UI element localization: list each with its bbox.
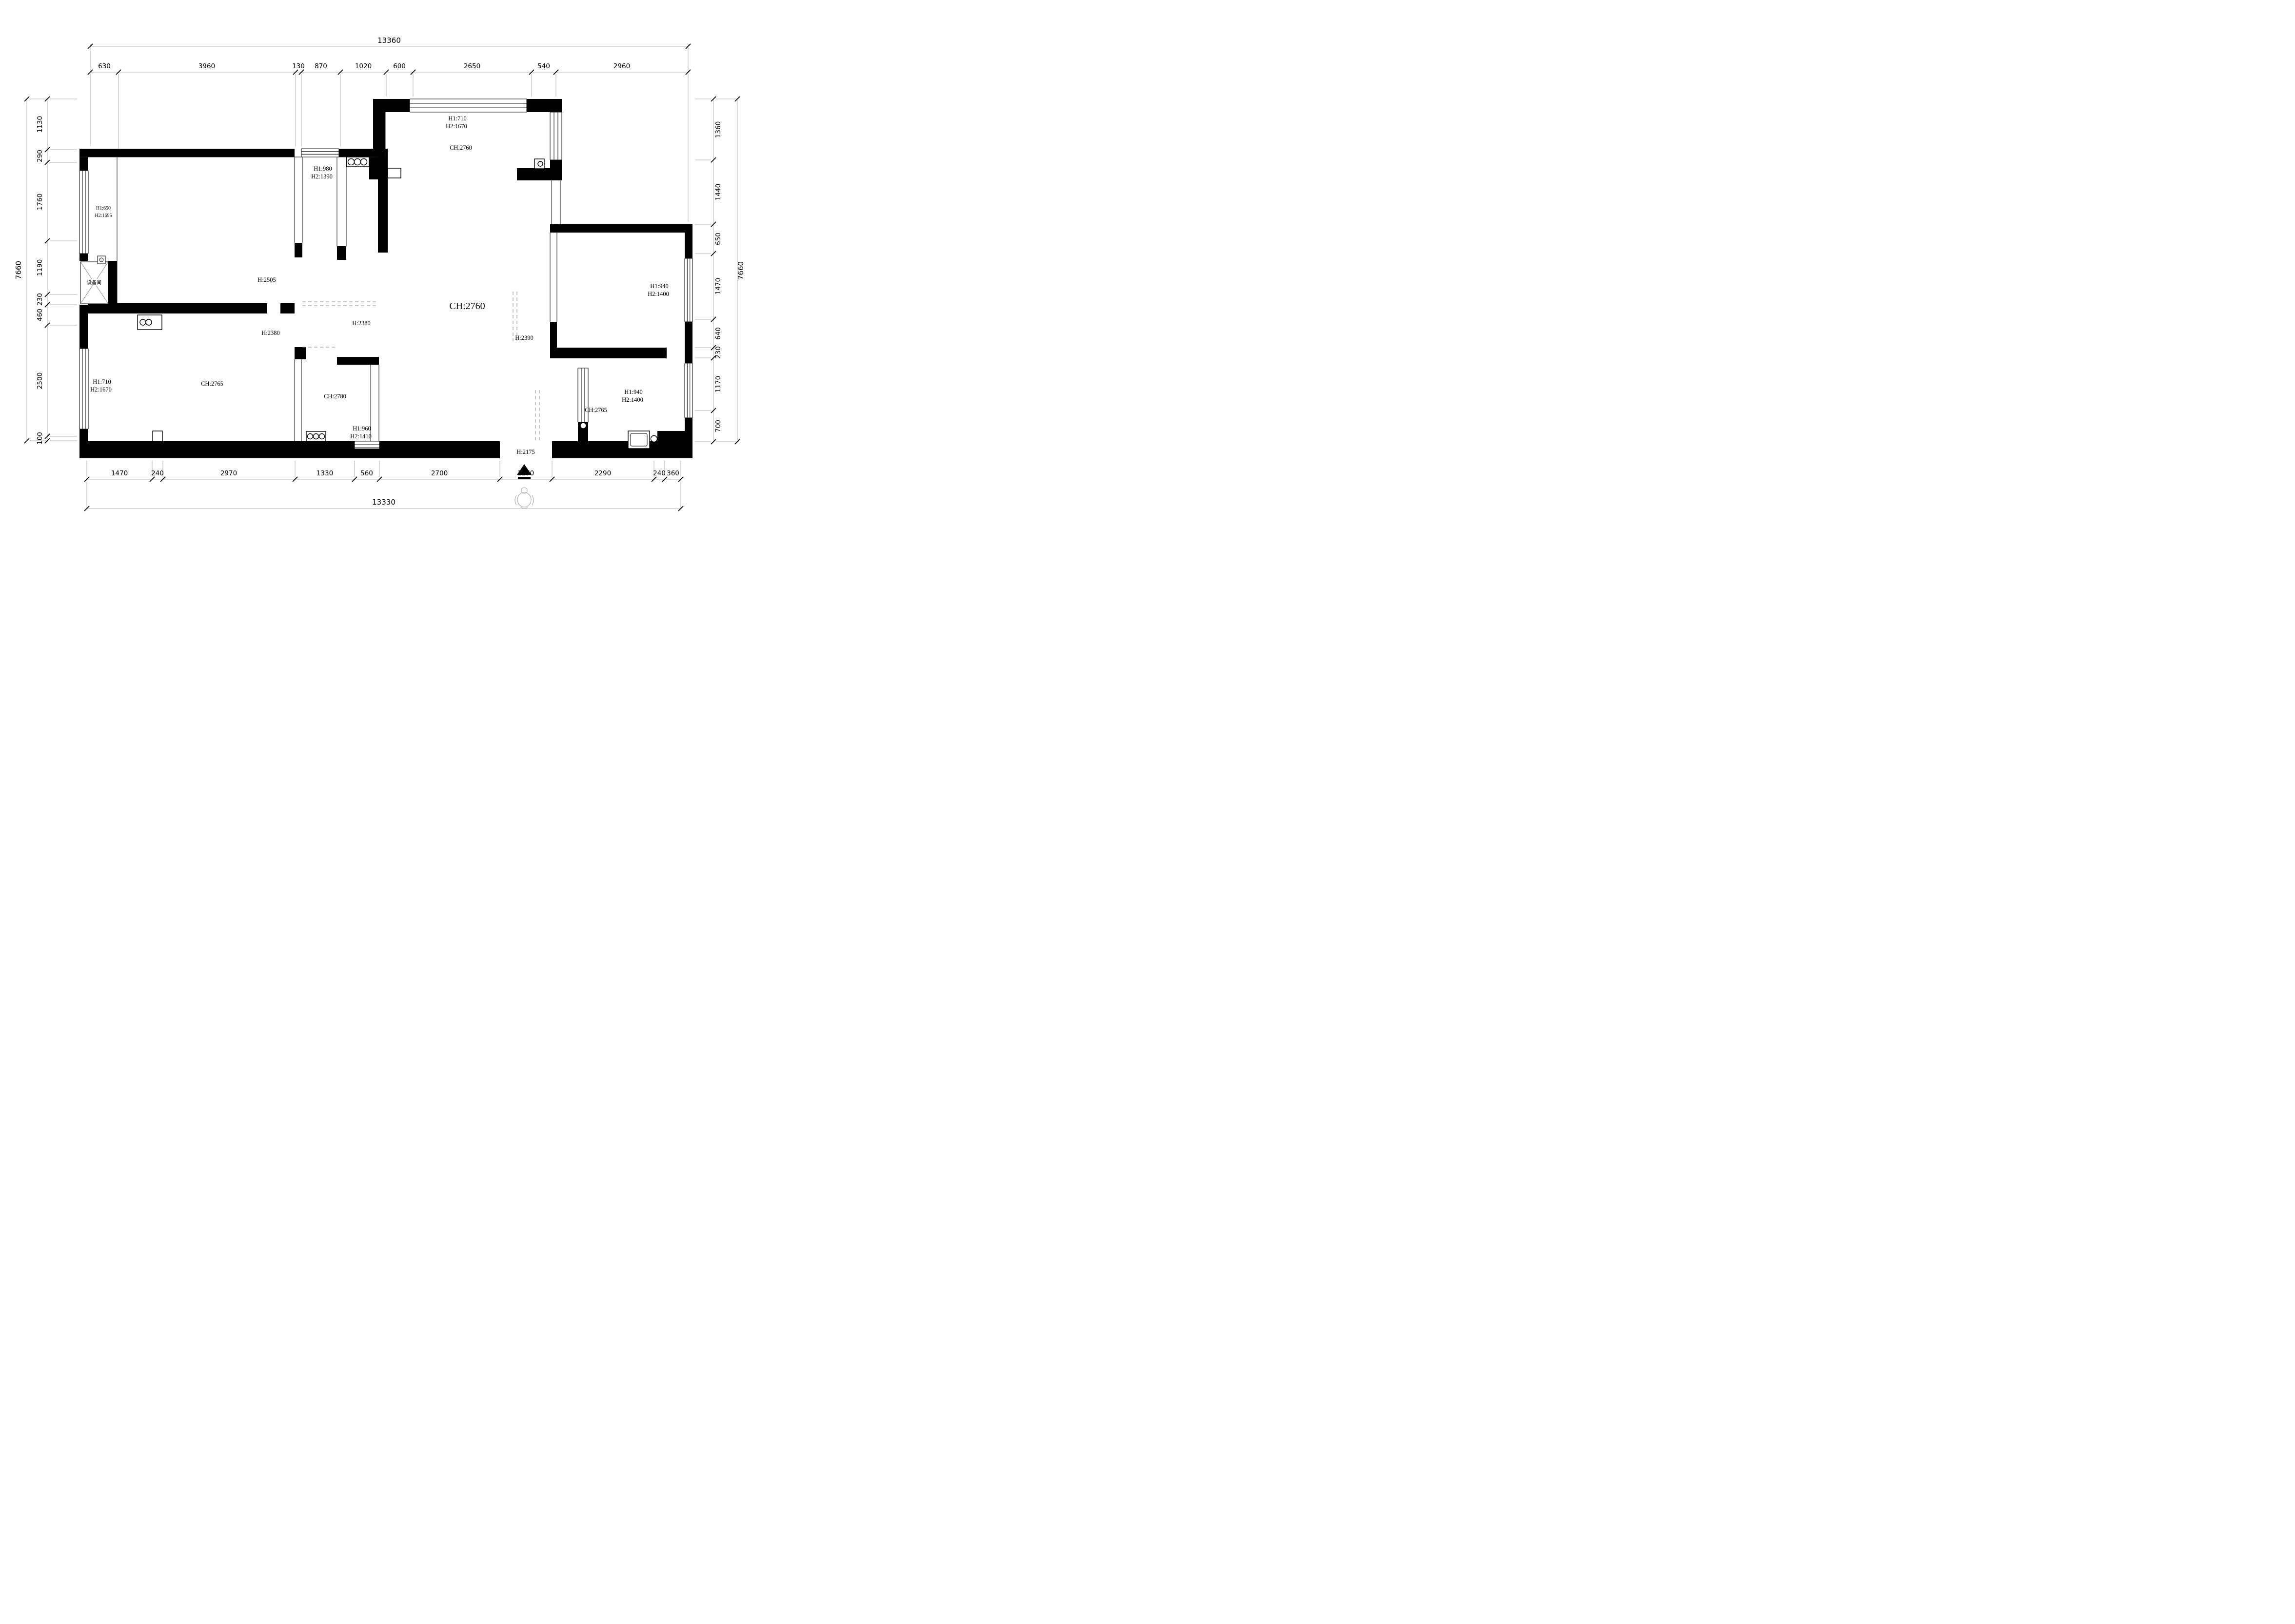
ceiling-height-label: CH:2765 — [201, 380, 223, 387]
dim-left-seg: 1190 — [36, 259, 44, 276]
dim-bottom-seg: 240 — [151, 470, 164, 477]
dim-top: 13360 630 3960 130 870 1020 600 2650 540… — [98, 36, 630, 70]
dim-top-seg: 130 — [292, 62, 305, 70]
ceiling-height-label: CH:2780 — [324, 393, 346, 400]
dim-left-seg: 290 — [36, 150, 44, 162]
dim-left: 7660 1130 290 1760 1190 230 460 2500 100 — [14, 116, 44, 445]
thin-partitions — [79, 112, 560, 441]
window-label: H2:1400 — [648, 291, 669, 297]
window-label: H2:1410 — [350, 433, 372, 440]
dim-left-seg: 230 — [36, 293, 44, 306]
counter-icon — [138, 315, 162, 330]
dim-top-seg: 1020 — [355, 62, 372, 70]
dim-right-total: 7660 — [736, 261, 745, 280]
window-label: H1:710 — [93, 378, 111, 385]
ceiling-height-label: CH:2760 — [449, 301, 485, 312]
dim-right-seg: 640 — [714, 327, 722, 340]
dim-left-seg: 2500 — [36, 372, 44, 389]
dim-top-seg: 2650 — [464, 62, 480, 70]
dim-right-seg: 1470 — [714, 278, 722, 294]
height-label: H:2380 — [352, 320, 371, 327]
dim-right-seg: 650 — [714, 233, 722, 245]
floor-box — [153, 431, 162, 441]
window-label: H1:710 — [448, 115, 467, 122]
dim-left-seg: 100 — [36, 432, 44, 445]
dim-left-total: 7660 — [14, 261, 23, 279]
dim-top-seg: 2960 — [613, 62, 630, 70]
dim-top-seg: 870 — [315, 62, 327, 70]
window-label: H1:650 — [96, 206, 111, 211]
dim-bottom: 1470 240 2970 1330 560 2700 1170 2290 24… — [111, 470, 679, 507]
stove-icon — [347, 157, 369, 167]
entrance-height-label: H:2175 — [516, 449, 535, 455]
dim-bottom-seg: 560 — [360, 470, 373, 477]
ceiling-height-label: CH:2760 — [450, 144, 472, 151]
ceiling-height-label: CH:2765 — [585, 407, 607, 413]
walls — [79, 99, 692, 458]
window-label: H1:940 — [650, 283, 669, 290]
burner-icon — [306, 431, 326, 441]
window-label: H2:1670 — [90, 386, 112, 393]
dim-top-seg: 3960 — [198, 62, 215, 70]
dim-right-seg: 700 — [714, 420, 722, 432]
dim-top-seg: 630 — [98, 62, 111, 70]
entrance-arrow-icon — [517, 464, 532, 479]
height-label: H:2505 — [257, 276, 276, 283]
dim-left-seg: 1130 — [36, 116, 44, 133]
dim-bottom-total: 13330 — [372, 498, 396, 507]
dim-bottom-seg: 360 — [667, 470, 679, 477]
dim-bottom-seg: 1330 — [317, 470, 333, 477]
person-figure — [515, 488, 534, 509]
floor-plan-svg: 13360 630 3960 130 870 1020 600 2650 540… — [0, 0, 765, 541]
height-label: H:2390 — [515, 334, 534, 341]
equipment-room: 设备间 — [80, 256, 108, 304]
floor-plan-page: 13360 630 3960 130 870 1020 600 2650 540… — [0, 0, 765, 541]
window-label: H2:1670 — [446, 123, 467, 130]
dim-left-seg: 1760 — [36, 194, 44, 210]
window-label: H1:980 — [314, 165, 332, 172]
window-label: H1:960 — [353, 425, 371, 432]
dim-right-seg: 1440 — [714, 184, 722, 200]
plumbing-circle-icon — [651, 436, 657, 442]
dim-right-seg: 230 — [714, 346, 722, 359]
dim-top-seg: 540 — [537, 62, 550, 70]
window-label: H2:1400 — [622, 396, 643, 403]
dashed-openings — [302, 292, 539, 441]
dim-bottom-seg: 1470 — [111, 470, 128, 477]
dim-left-seg: 460 — [36, 309, 44, 321]
dim-right: 7660 1360 1440 650 1470 640 230 1170 700 — [714, 121, 745, 432]
window-label: H2:1390 — [311, 173, 333, 180]
window-label: H2:1695 — [95, 213, 112, 218]
door-frame-box — [388, 168, 401, 178]
dim-top-total: 13360 — [377, 36, 401, 45]
dim-bottom-seg: 2290 — [594, 470, 611, 477]
washing-machine-icon — [628, 431, 650, 449]
height-label: H:2380 — [261, 330, 280, 336]
dim-top-seg: 600 — [393, 62, 406, 70]
equipment-room-label: 设备间 — [87, 279, 101, 286]
dim-bottom-seg: 2970 — [220, 470, 237, 477]
dim-right-seg: 1360 — [714, 121, 722, 138]
dim-bottom-seg: 240 — [653, 470, 666, 477]
plumbing-circle-icon — [580, 423, 586, 429]
dim-right-seg: 1170 — [714, 376, 722, 392]
window-label: H1:940 — [624, 389, 643, 395]
dim-bottom-seg: 2700 — [431, 470, 448, 477]
fixtures — [138, 157, 657, 449]
closet-door-icon — [534, 159, 544, 169]
